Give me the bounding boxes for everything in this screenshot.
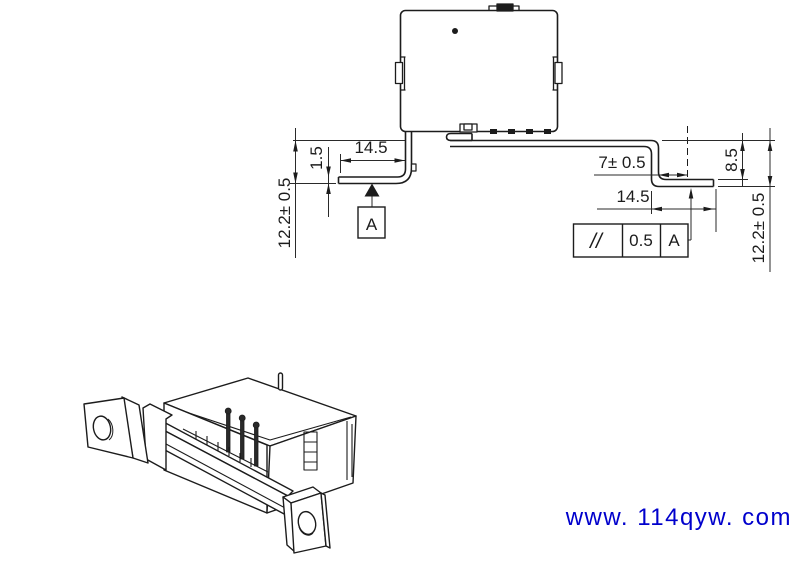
tolerance-datum-ref: A: [668, 231, 680, 250]
dim-right-height: 12.2± 0.5: [749, 193, 768, 264]
iso-right-bracket-plate: [291, 493, 326, 553]
iso-right-bracket: [283, 487, 330, 553]
dim-right-span: 14.5: [616, 187, 649, 206]
tolerance-value: 0.5: [629, 231, 653, 250]
right-bracket: [450, 141, 714, 187]
dim-lead-thickness: 1.5: [307, 146, 326, 170]
engineering-drawing-svg: 12.2± 0.5 1.5 14.5 A 7± 0.5 14.5 // 0.5 …: [0, 0, 800, 566]
dim-left-span: 14.5: [354, 138, 387, 157]
drawing-page: 12.2± 0.5 1.5 14.5 A 7± 0.5 14.5 // 0.5 …: [0, 0, 800, 566]
dim-right-offset: 7± 0.5: [598, 153, 645, 172]
iso-left-bracket: [84, 397, 172, 470]
bracket-clip-tab: [460, 124, 477, 132]
iso-view: [84, 373, 356, 553]
iso-left-bracket-plate: [84, 398, 133, 458]
dim-left-height: 12.2± 0.5: [275, 178, 294, 249]
vent-dot: [452, 28, 458, 34]
watermark-url: www. 114qyw. com: [392, 504, 792, 532]
iso-top-pin: [279, 373, 283, 390]
datum-label: A: [366, 215, 378, 234]
dim-step-height: 8.5: [722, 148, 741, 172]
relay-body-outline: [401, 11, 558, 132]
tolerance-parallelism-symbol: //: [588, 230, 604, 253]
bracket-tongue: [447, 134, 473, 141]
